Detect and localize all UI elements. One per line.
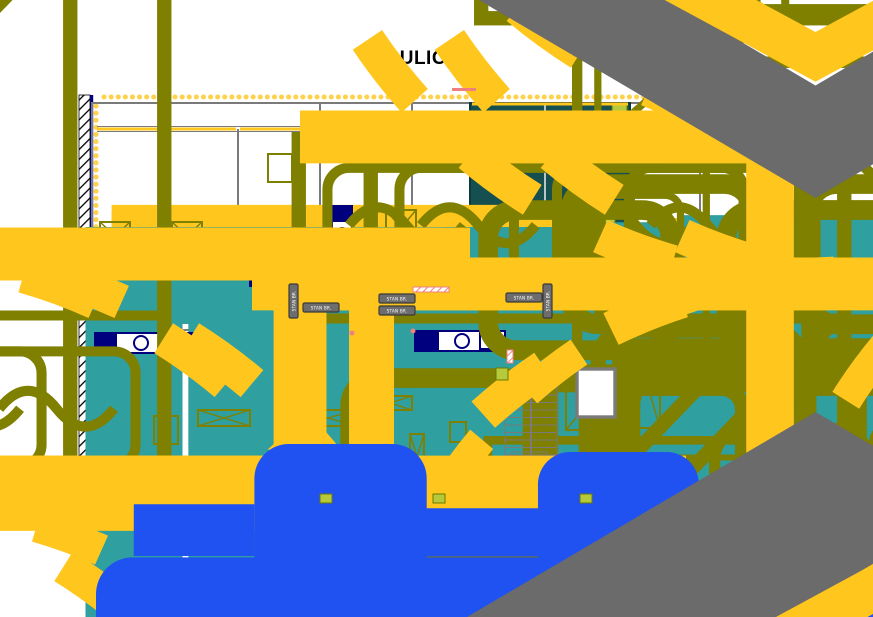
apartment-label-plaque: STAN BR. xyxy=(289,284,298,318)
apartment-label-plaque: STAN BR. xyxy=(543,284,552,318)
apartment-label-plaque: STAN BR. xyxy=(303,303,339,312)
apartment-label-plaque: STAN BR. xyxy=(379,294,415,303)
floor-plan-page: ULICA DVORIŠTE xyxy=(0,0,873,617)
svg-text:STAN BR.: STAN BR. xyxy=(292,291,297,312)
svg-text:STAN BR.: STAN BR. xyxy=(311,306,332,311)
floor-plan-drawing: ULICA DVORIŠTE xyxy=(0,0,873,617)
svg-text:STAN BR.: STAN BR. xyxy=(546,291,551,312)
svg-text:STAN BR.: STAN BR. xyxy=(387,309,408,314)
svg-text:STAN BR.: STAN BR. xyxy=(514,296,535,301)
apartment-label-plaque: STAN BR. xyxy=(379,306,415,315)
svg-text:STAN BR.: STAN BR. xyxy=(387,297,408,302)
apartment-label-plaque: STAN BR. xyxy=(506,293,542,302)
